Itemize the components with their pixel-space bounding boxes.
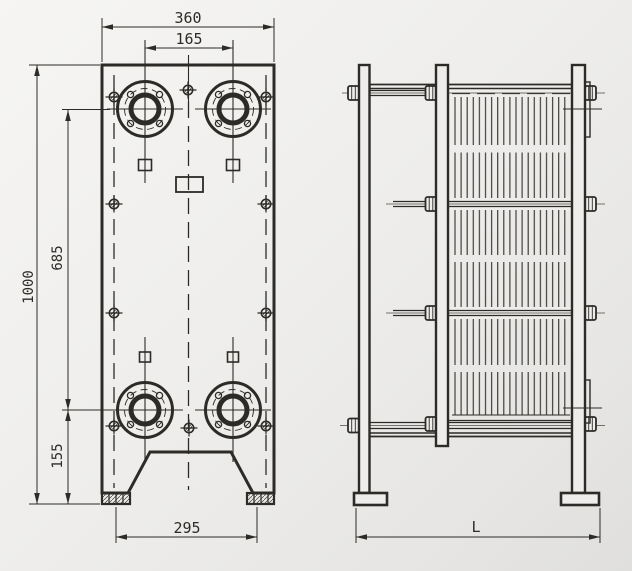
port-top-right <box>195 75 271 143</box>
bolt-symbols <box>106 82 275 437</box>
pressure-plate <box>572 65 585 493</box>
front-view: 360 165 1000 685 155 <box>21 9 275 543</box>
top-carrying-bar <box>369 85 572 89</box>
dimension-155: 155 <box>50 410 71 504</box>
front-foot-right <box>247 493 274 504</box>
dim-label-height: 1000 <box>21 270 37 304</box>
dim-label-port-spacing: 165 <box>175 30 202 48</box>
port-bottom-left <box>107 376 183 444</box>
front-foot-left <box>102 493 130 504</box>
dimension-L: L <box>356 508 600 543</box>
fixed-frame-plate <box>436 65 448 446</box>
dimension-165: 165 <box>145 30 233 51</box>
dim-label-port-height: 685 <box>50 245 66 270</box>
dim-label-length: L <box>471 518 480 536</box>
side-foot-left <box>354 493 387 505</box>
tie-bolt-bottom <box>340 417 605 433</box>
port-bottom-right <box>195 376 271 444</box>
side-foot-right <box>561 493 599 505</box>
engineering-drawing-plate-heat-exchanger: 360 165 1000 685 155 <box>0 0 632 571</box>
dimension-295: 295 <box>116 507 257 543</box>
side-view: L <box>340 65 605 543</box>
plate-pack <box>452 97 570 415</box>
dim-label-foot-width: 295 <box>173 519 200 537</box>
support-column <box>359 65 370 493</box>
dim-label-bottom-offset: 155 <box>50 443 66 468</box>
dimension-1000: 1000 <box>21 65 100 504</box>
dimension-685: 685 <box>50 110 71 410</box>
dim-label-top-width: 360 <box>174 9 201 27</box>
port-top-left <box>107 75 183 143</box>
drawing-svg: 360 165 1000 685 155 <box>0 0 632 571</box>
